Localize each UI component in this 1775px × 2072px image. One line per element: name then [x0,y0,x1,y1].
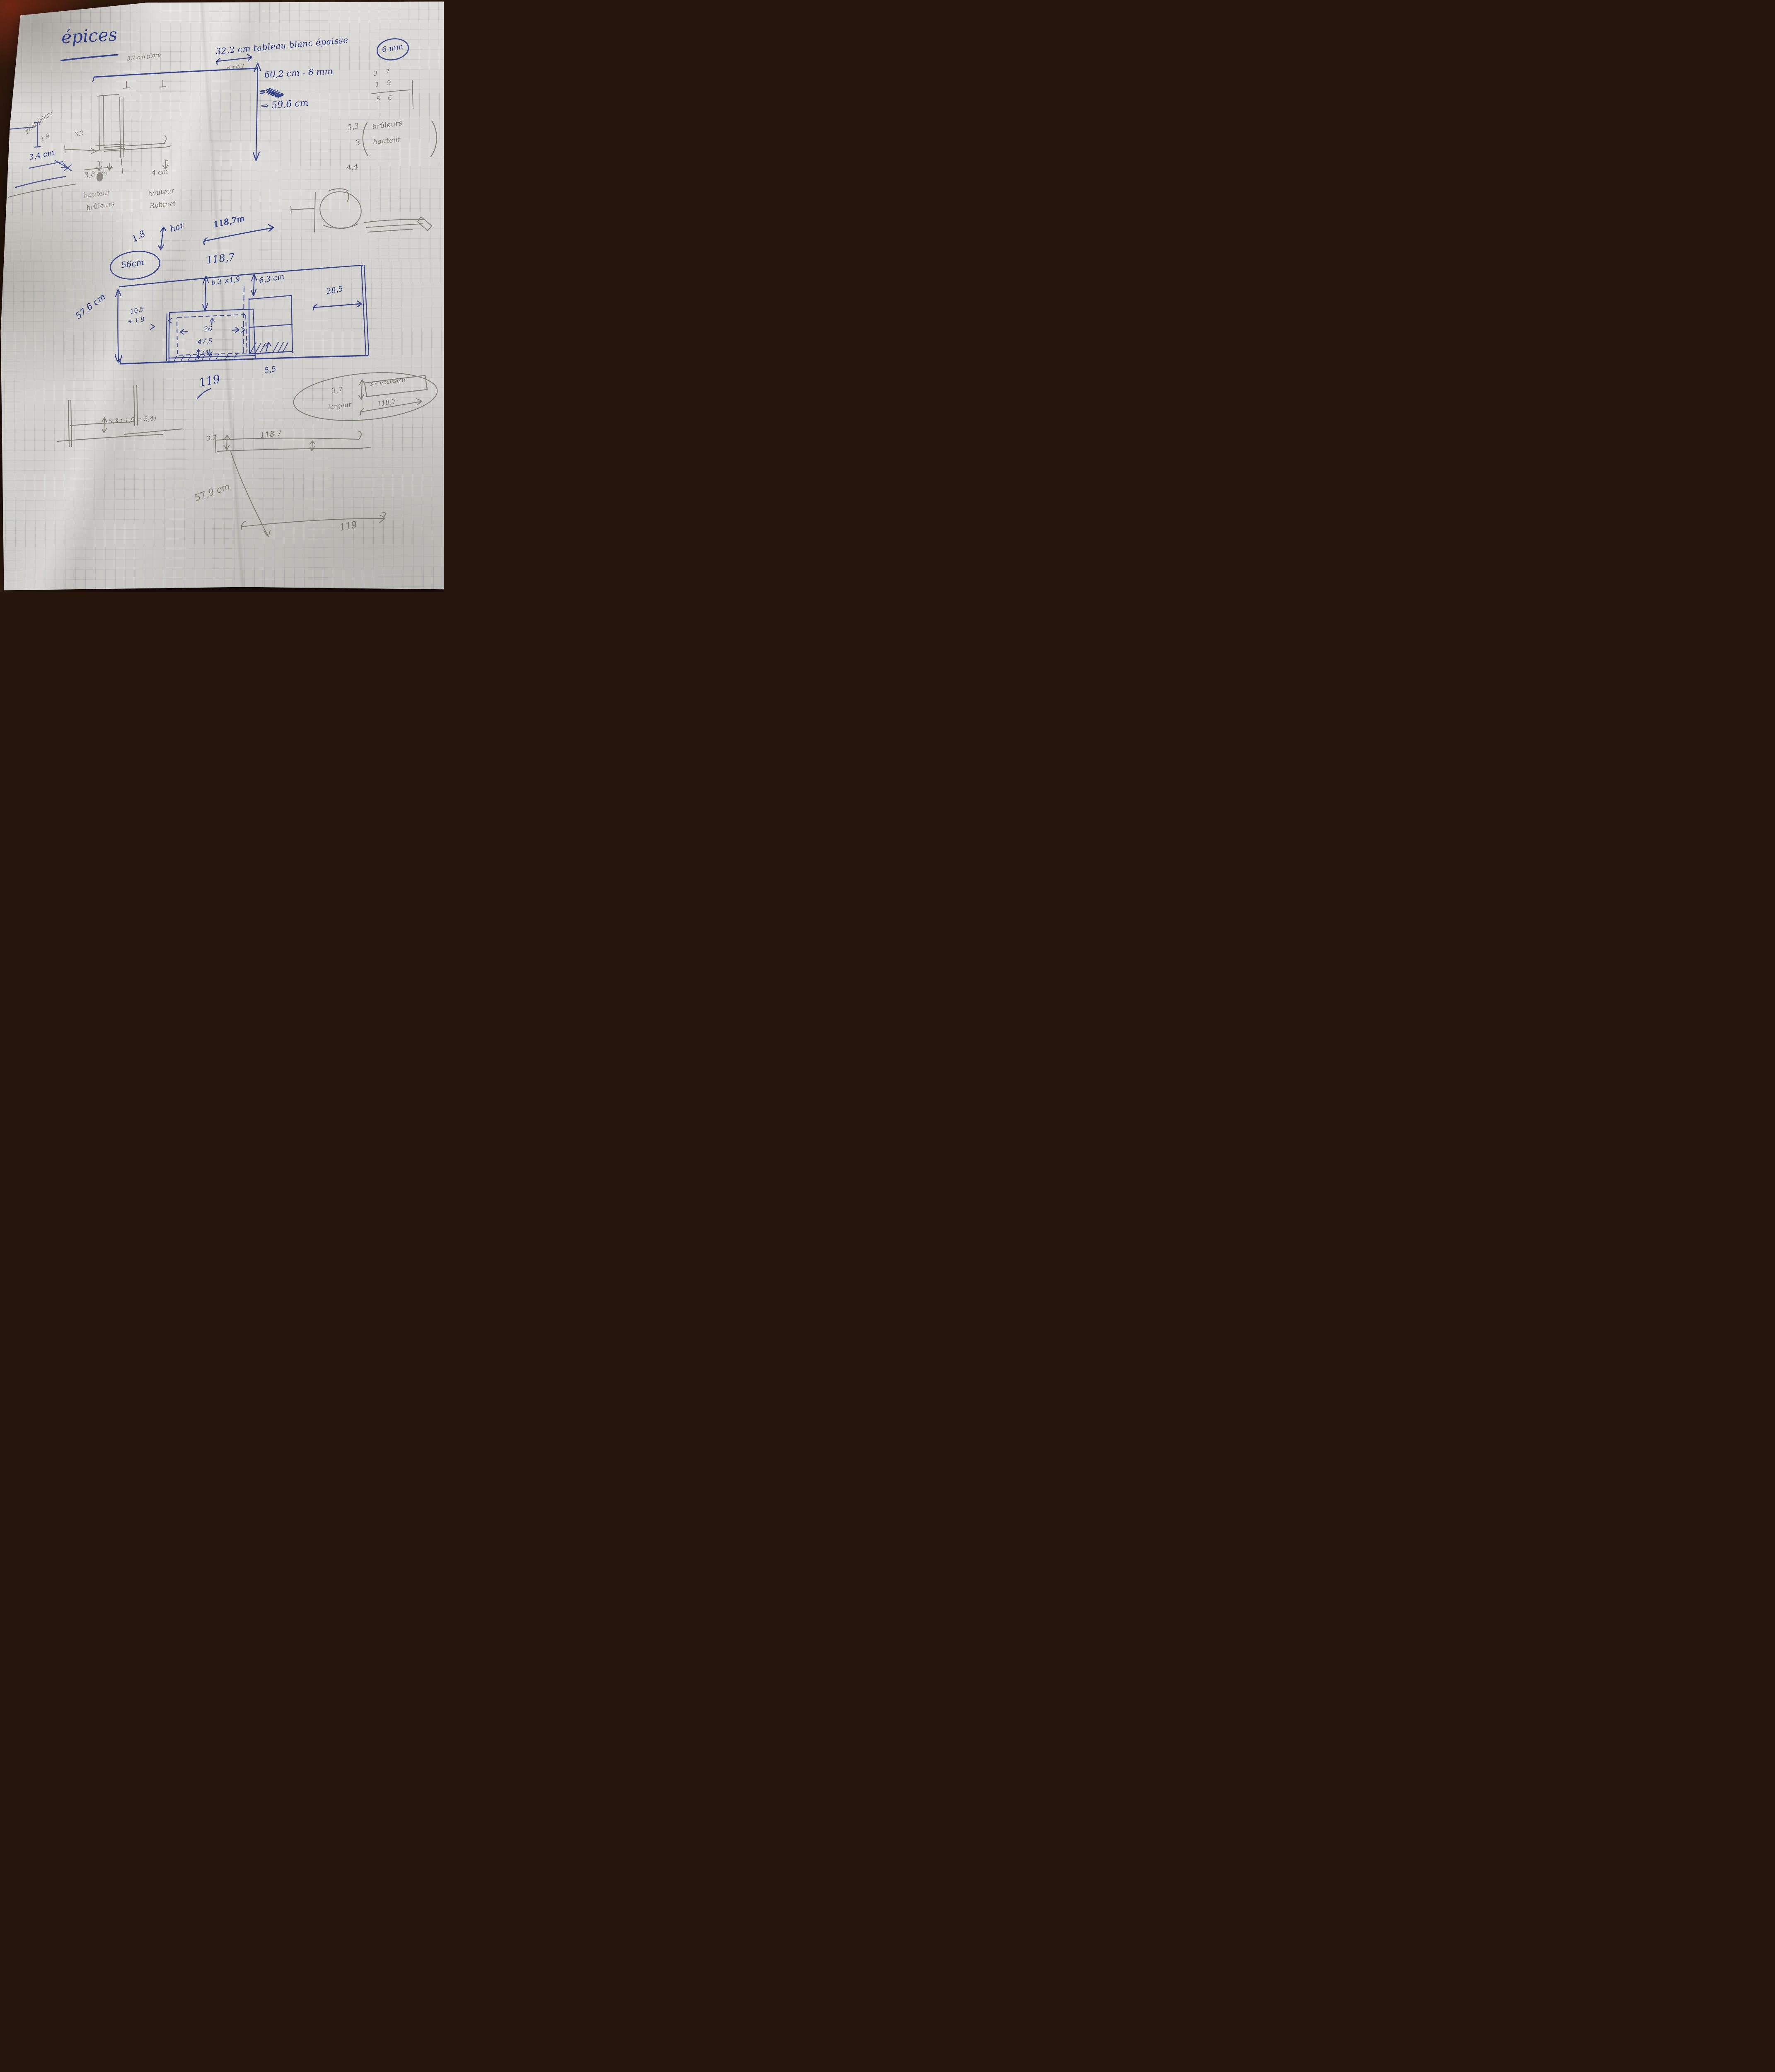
bottom-bar-sketch [215,431,385,536]
top-width-arrow [217,55,252,64]
photo-of-sketch: épices 3,7 cm plare 32,2 cm tableau blan… [0,0,444,592]
bar-height-value: 3.7 [206,435,216,442]
paper-sheet-wrap: épices 3,7 cm plare 32,2 cm tableau blan… [0,0,444,592]
page-title: épices [61,26,118,46]
height-dimension-arrow [253,63,261,161]
slot2-right-arrow [313,301,362,310]
haut-arrow [158,227,166,249]
knob-value: 4,4 [346,164,358,172]
slot2-cutout [243,287,293,354]
slot2-bottom-value: 5,5 [264,366,277,375]
plan-width-swoosh [197,389,210,399]
slot1-offset-arrow [203,276,208,311]
edge-ellipse-sketch [292,367,439,426]
slot1-gap-value: 2,5 [201,350,209,355]
title-underline [61,55,118,61]
shelf-ticks [123,80,166,88]
burners-height-value: 3 [355,139,361,147]
plan-left-height-arrow [115,289,122,362]
sketch-strokes [0,0,444,592]
graph-paper: épices 3,7 cm plare 32,2 cm tableau blan… [0,0,444,592]
slot1-height-value: 47,5 [197,338,213,345]
edge-front-value: 3,7 [331,386,343,395]
bar-width-value: 118.7 [260,430,282,439]
bracket-sketch [58,385,182,447]
slot1-width-value: 26 [203,325,212,332]
top-shelf-line [93,68,257,82]
column-sketch [8,94,171,197]
tap-height-value: 4 cm [151,168,168,176]
equals-sign: = [259,88,266,96]
burners-value: 3,3 [347,123,360,132]
slot2-top-offset-arrow [251,274,257,296]
knob-sketch [291,188,432,232]
